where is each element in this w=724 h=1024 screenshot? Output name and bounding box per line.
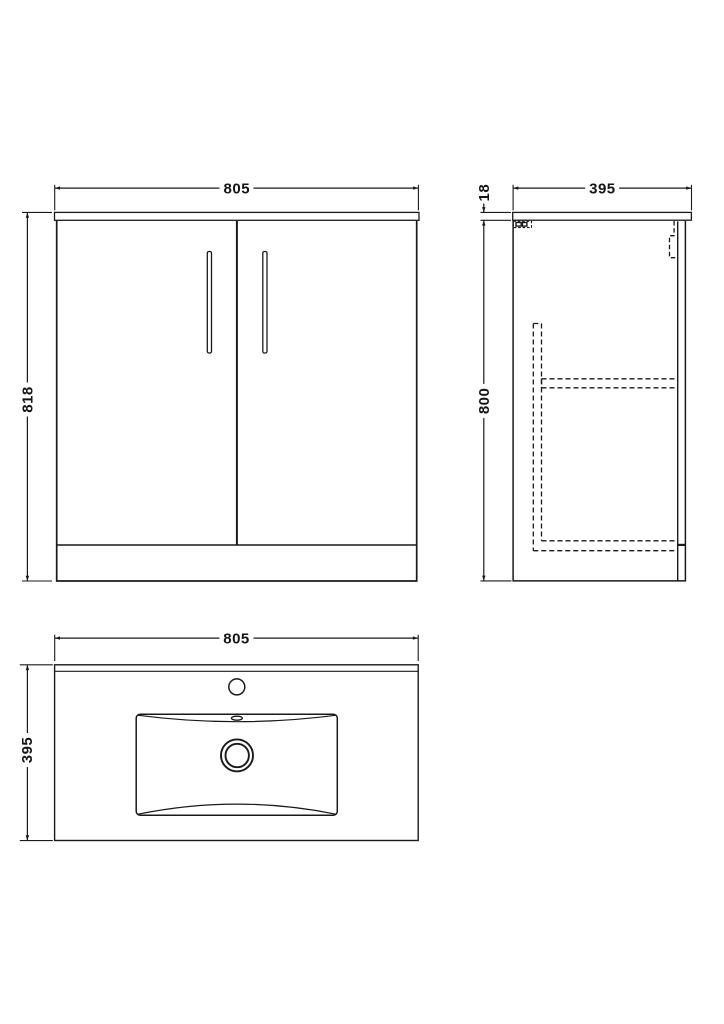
svg-text:818: 818 xyxy=(20,386,37,413)
svg-text:800: 800 xyxy=(476,388,493,415)
svg-text:18: 18 xyxy=(476,184,493,202)
svg-text:805: 805 xyxy=(224,180,251,197)
svg-text:395: 395 xyxy=(589,180,616,197)
svg-text:395: 395 xyxy=(19,737,36,764)
svg-text:805: 805 xyxy=(223,630,250,647)
